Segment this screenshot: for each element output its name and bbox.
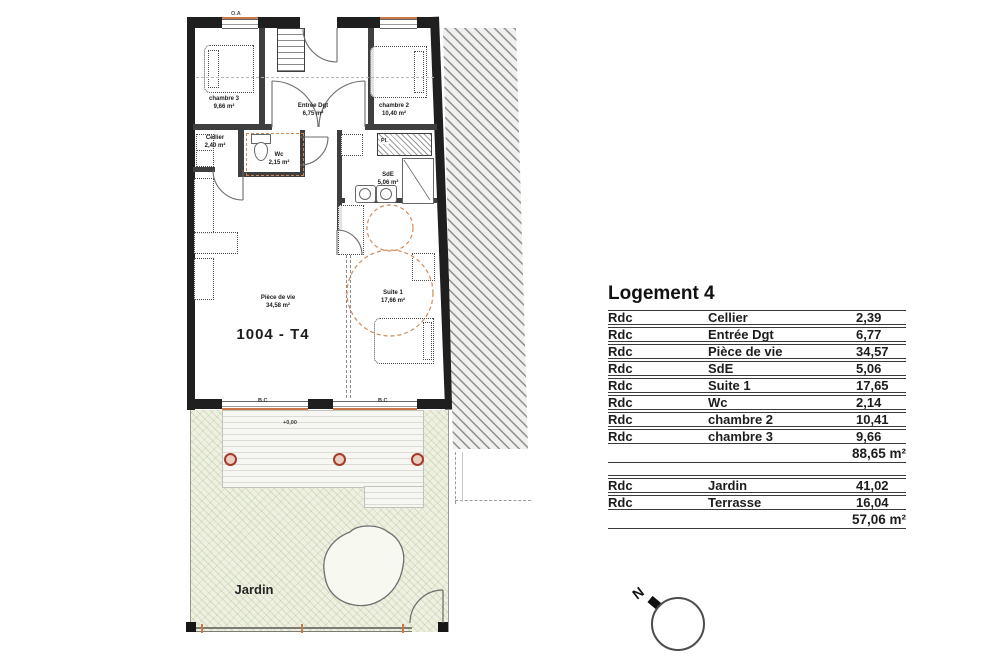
cell-area: 2,14 — [856, 395, 906, 410]
terrace-area — [222, 410, 424, 488]
property-line — [455, 500, 531, 501]
compass-north-label: N — [629, 584, 647, 603]
table-row: Rdc Suite 1 17,65 — [608, 378, 906, 393]
dimension-axis — [196, 77, 434, 78]
sink-1-basin — [359, 188, 371, 200]
cell-room: Suite 1 — [708, 378, 856, 393]
window-code-top: O.A — [231, 11, 241, 17]
kitchen-counter-1 — [194, 178, 214, 234]
compass-circle — [651, 597, 705, 651]
table-row: Rdc chambre 3 9,66 — [608, 429, 906, 444]
fence-mark — [301, 624, 303, 633]
partition-mid-left — [193, 124, 272, 130]
window-sill — [222, 17, 258, 19]
partition-suite-living-dashed — [346, 255, 351, 398]
kitchen-counter-2 — [194, 232, 238, 254]
terrace-step — [364, 486, 424, 508]
table-section-interior: Rdc Cellier 2,39 Rdc Entrée Dgt 6,77 Rdc… — [608, 310, 906, 463]
cell-area: 16,04 — [856, 495, 906, 510]
table-total-interior: 88,65 m² — [608, 444, 906, 463]
cell-level: Rdc — [608, 344, 708, 359]
kitchen-counter-3 — [194, 258, 214, 300]
cell-area: 5,06 — [856, 361, 906, 376]
cell-level: Rdc — [608, 412, 708, 427]
table-row: Rdc Entrée Dgt 6,77 — [608, 327, 906, 342]
entry-closet — [277, 28, 305, 72]
cell-level: Rdc — [608, 361, 708, 376]
partition-cellier-bottom — [193, 167, 215, 172]
table-section-exterior: Rdc Jardin 41,02 Rdc Terrasse 16,04 57,0… — [608, 475, 906, 529]
bay-code-right: B.C — [378, 398, 387, 404]
property-line — [455, 452, 456, 504]
table-row: Rdc Jardin 41,02 — [608, 478, 906, 493]
cell-level: Rdc — [608, 429, 708, 444]
table-title: Logement 4 — [608, 283, 906, 305]
floorplan-page: Jardin +0,00 O.A B.C B.C Pl. — [0, 0, 1000, 666]
entrance-opening — [300, 17, 337, 28]
fence-post — [186, 622, 196, 632]
cell-level: Rdc — [608, 478, 708, 493]
pillow-chambre2 — [414, 51, 424, 93]
wall-bottom-seg — [187, 399, 222, 409]
cell-level: Rdc — [608, 327, 708, 342]
fence-mark — [201, 624, 203, 633]
room-label-entree: Entrée Dgt6,75 m² — [278, 103, 348, 119]
cellier-appliance — [196, 150, 214, 167]
terrace-post — [411, 453, 424, 466]
bay-code-left: B.C — [258, 398, 267, 404]
area-table: Logement 4 Rdc Cellier 2,39 Rdc Entrée D… — [608, 283, 906, 529]
cell-area: 41,02 — [856, 478, 906, 493]
terrace-post — [224, 453, 237, 466]
room-label-chambre2: chambre 210,40 m² — [359, 103, 429, 119]
table-total-exterior: 57,06 m² — [608, 510, 906, 529]
wall-bottom-seg — [417, 399, 447, 409]
cell-room: chambre 2 — [708, 412, 856, 427]
cell-room: chambre 3 — [708, 429, 856, 444]
table-row: Rdc Wc 2,14 — [608, 395, 906, 410]
cell-level: Rdc — [608, 310, 708, 325]
garden-label: Jardin — [212, 582, 296, 597]
wardrobe-label: Pl. — [380, 138, 389, 144]
table-row: Rdc chambre 2 10,41 — [608, 412, 906, 427]
table-row: Rdc Terrasse 16,04 — [608, 495, 906, 510]
sink-2-basin — [380, 188, 392, 200]
cell-area: 34,57 — [856, 344, 906, 359]
pillow-suite1 — [423, 322, 432, 360]
wardrobe-suite — [412, 253, 435, 281]
unit-number-label: 1004 - T4 — [218, 326, 328, 343]
cell-area: 9,66 — [856, 429, 906, 444]
cell-area: 2,39 — [856, 310, 906, 325]
cell-room: Jardin — [708, 478, 856, 493]
cell-level: Rdc — [608, 395, 708, 410]
fence-mark — [402, 624, 404, 633]
cell-area: 6,77 — [856, 327, 906, 342]
room-label-cellier: Cellier2,40 m² — [180, 135, 250, 151]
wardrobe-suite-hall — [338, 205, 364, 255]
room-label-wc: Wc2,15 m² — [244, 152, 314, 168]
room-label-sde: SdE5,06 m² — [353, 172, 423, 188]
room-label-chambre3: chambre 39,66 m² — [189, 96, 259, 112]
window-chambre2 — [380, 19, 417, 29]
cell-level: Rdc — [608, 378, 708, 393]
terrace-level-mark: +0,00 — [283, 420, 297, 426]
cell-area: 17,65 — [856, 378, 906, 393]
table-row: Rdc Pièce de vie 34,57 — [608, 344, 906, 359]
room-label-piece-de-vie: Pièce de vie34,58 m² — [243, 295, 313, 311]
table-row: Rdc SdE 5,06 — [608, 361, 906, 376]
window-chambre3 — [222, 19, 258, 29]
room-label-suite1: Suite 117,66 m² — [358, 290, 428, 306]
cell-area: 10,41 — [856, 412, 906, 427]
sde-washer — [341, 134, 363, 156]
fence-post — [438, 622, 448, 632]
wall-bottom-seg — [308, 399, 333, 409]
cell-room: Wc — [708, 395, 856, 410]
cell-room: Terrasse — [708, 495, 856, 510]
window-sill — [380, 17, 417, 19]
property-line-thin — [462, 452, 463, 502]
adjacent-building-hatch — [443, 28, 528, 449]
cell-level: Rdc — [608, 495, 708, 510]
cell-room: Entrée Dgt — [708, 327, 856, 342]
wardrobe-chambre2: Pl. — [377, 133, 432, 156]
pillow-chambre3 — [208, 50, 219, 88]
table-row: Rdc Cellier 2,39 — [608, 310, 906, 325]
cell-room: Pièce de vie — [708, 344, 856, 359]
cell-room: Cellier — [708, 310, 856, 325]
partition-mid-right — [365, 124, 437, 130]
terrace-post — [333, 453, 346, 466]
cell-room: SdE — [708, 361, 856, 376]
